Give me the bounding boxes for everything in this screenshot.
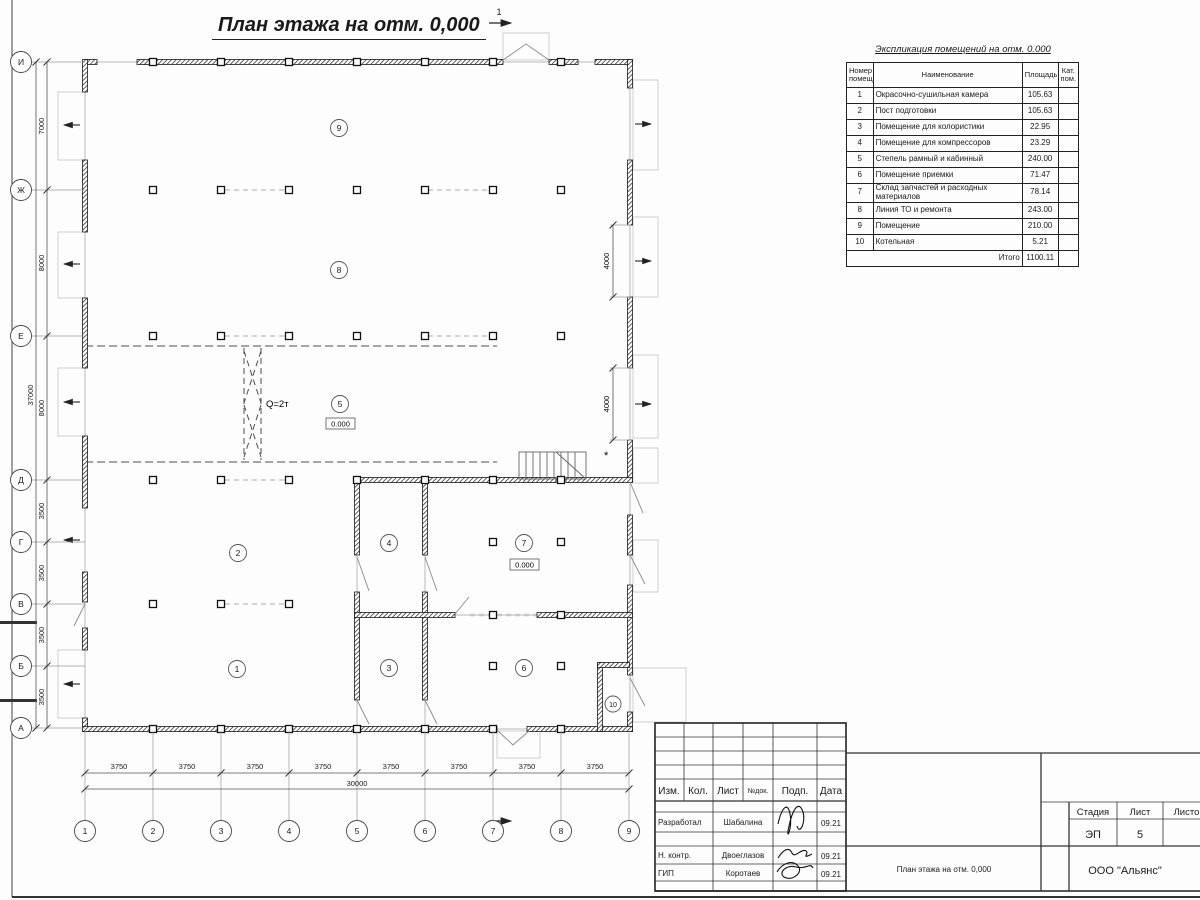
room-num: 5 — [847, 152, 874, 168]
room-name: Помещение для компрессоров — [873, 136, 1022, 152]
svg-text:30000: 30000 — [347, 779, 368, 788]
room-num: 9 — [847, 218, 874, 234]
svg-text:3: 3 — [387, 663, 392, 673]
schedule-title: Экспликация помещений на отм. 0.000 — [846, 44, 1080, 55]
svg-text:9: 9 — [337, 123, 342, 133]
svg-text:3750: 3750 — [519, 762, 536, 771]
svg-text:7: 7 — [491, 826, 496, 836]
entrance-canopy — [503, 33, 549, 60]
schedule-total-row: Итого 1100.11 — [847, 250, 1079, 266]
room-name: Помещение приемки — [873, 168, 1022, 184]
schedule-table: Номер помещ. Наименование Площадь Кат. п… — [846, 62, 1079, 267]
room-num: 3 — [847, 120, 874, 136]
doc-title: План этажа на отм. 0,000 — [897, 865, 992, 874]
schedule-header-row: Номер помещ. Наименование Площадь Кат. п… — [847, 63, 1079, 88]
room-cat — [1058, 202, 1078, 218]
tb-role: Н. контр. — [658, 851, 691, 860]
table-row: 9Помещение210.00 — [847, 218, 1079, 234]
table-row: 6Помещение приемки71.47 — [847, 168, 1079, 184]
room-cat — [1058, 184, 1078, 203]
svg-text:8: 8 — [559, 826, 564, 836]
svg-text:37000: 37000 — [26, 385, 35, 406]
room-name: Степель рамный и кабинный — [873, 152, 1022, 168]
drawing-sheet: Q=2т — [0, 0, 1200, 900]
svg-text:8000: 8000 — [37, 400, 46, 417]
tb-role: Разработал — [658, 818, 702, 827]
svg-text:3500: 3500 — [37, 503, 46, 520]
svg-text:3500: 3500 — [37, 627, 46, 644]
svg-text:7: 7 — [522, 538, 527, 548]
section-marks: 1 1 — [489, 7, 511, 838]
svg-text:Ж: Ж — [17, 185, 25, 195]
room-area: 22.95 — [1022, 120, 1058, 136]
col-header-number: Номер помещ. — [847, 63, 874, 88]
room-cat — [1058, 104, 1078, 120]
svg-text:1: 1 — [496, 7, 501, 17]
walls — [83, 60, 633, 732]
room-cat — [1058, 136, 1078, 152]
table-row: 8Линия ТО и ремонта243.00 — [847, 202, 1079, 218]
svg-text:4000: 4000 — [602, 396, 611, 413]
tb-col-podp: Подп. — [782, 786, 809, 797]
svg-text:1: 1 — [83, 826, 88, 836]
room-cat — [1058, 218, 1078, 234]
room-area: 71.47 — [1022, 168, 1058, 184]
table-row: 4Помещение для компрессоров23.29 — [847, 136, 1079, 152]
room-num: 1 — [847, 88, 874, 104]
svg-text:3750: 3750 — [247, 762, 264, 771]
room-area: 105.63 — [1022, 88, 1058, 104]
svg-text:3500: 3500 — [37, 689, 46, 706]
room-cat — [1058, 120, 1078, 136]
gate-dimensions: 4000 4000 — [602, 222, 631, 444]
svg-text:3750: 3750 — [179, 762, 196, 771]
svg-text:В: В — [18, 599, 24, 609]
svg-text:2: 2 — [236, 548, 241, 558]
tb-name: Двоеглазов — [722, 851, 765, 860]
col-header-cat: Кат. пом. — [1058, 63, 1078, 88]
tb-col-list: Лист — [717, 786, 739, 797]
fold-mark — [0, 621, 37, 624]
svg-text:6: 6 — [522, 663, 527, 673]
svg-text:0.000: 0.000 — [331, 420, 350, 429]
room-name: Помещение для колористики — [873, 120, 1022, 136]
svg-text:3: 3 — [219, 826, 224, 836]
stage-value: ЭП — [1085, 829, 1101, 841]
table-row: 7Склад запчастей и расходных материалов7… — [847, 184, 1079, 203]
tb-name: Коротаев — [726, 869, 761, 878]
room-num: 10 — [847, 234, 874, 250]
tb-col-izm: Изм. — [658, 786, 679, 797]
room-name: Склад запчастей и расходных материалов — [873, 184, 1022, 203]
total-cat — [1058, 250, 1078, 266]
crane-capacity-label: Q=2т — [266, 399, 289, 410]
svg-text:3750: 3750 — [587, 762, 604, 771]
room-area: 240.00 — [1022, 152, 1058, 168]
svg-text:Б: Б — [18, 661, 24, 671]
table-row: 5Степель рамный и кабинный240.00 — [847, 152, 1079, 168]
room-name: Пост подготовки — [873, 104, 1022, 120]
room-schedule: Экспликация помещений на отм. 0.000 Номе… — [846, 44, 1080, 267]
svg-text:3750: 3750 — [111, 762, 128, 771]
fold-mark — [0, 699, 37, 702]
stage-label: Стадия — [1077, 807, 1109, 818]
sheet-label: Лист — [1130, 807, 1151, 818]
signatures — [777, 806, 813, 878]
table-row: 3Помещение для колористики22.95 — [847, 120, 1079, 136]
sheets-label: Листов — [1174, 807, 1200, 818]
col-header-area: Площадь — [1022, 63, 1058, 88]
svg-text:4: 4 — [387, 538, 392, 548]
row-axes: 7000 8000 8000 3500 3500 3500 3500 37000… — [11, 52, 86, 739]
room-cat — [1058, 234, 1078, 250]
svg-text:4: 4 — [287, 826, 292, 836]
crane-rails — [85, 346, 497, 462]
svg-text:9: 9 — [627, 826, 632, 836]
column-axes: 37503750 37503750 37503750 37503750 3000… — [75, 731, 640, 842]
stairs-footnote-asterisk: * — [604, 450, 609, 462]
tb-role: ГИП — [658, 869, 674, 878]
room-area: 5.21 — [1022, 234, 1058, 250]
room-num: 8 — [847, 202, 874, 218]
svg-text:Г: Г — [19, 537, 24, 547]
table-row: 1Окрасочно-сушильная камера105.63 — [847, 88, 1079, 104]
room-num: 7 — [847, 184, 874, 203]
room-cat — [1058, 168, 1078, 184]
svg-text:0.000: 0.000 — [515, 561, 534, 570]
room-num: 4 — [847, 136, 874, 152]
plan-title: План этажа на отм. 0,000 — [212, 14, 486, 40]
svg-text:3750: 3750 — [383, 762, 400, 771]
title-block: Изм. Кол. Лист №док. Подп. Дата Разработ… — [655, 723, 1200, 891]
company-name: ООО "Альянс" — [1088, 865, 1162, 877]
tb-date: 09.21 — [821, 819, 842, 828]
svg-text:3750: 3750 — [315, 762, 332, 771]
aprons-canopies — [58, 33, 686, 758]
room-area: 105.63 — [1022, 104, 1058, 120]
tb-col-data: Дата — [820, 786, 843, 797]
room-name: Котельная — [873, 234, 1022, 250]
svg-text:6: 6 — [423, 826, 428, 836]
svg-text:2: 2 — [151, 826, 156, 836]
svg-text:А: А — [18, 723, 24, 733]
svg-text:Е: Е — [18, 331, 24, 341]
tb-name: Шабалина — [724, 818, 763, 827]
sheet-number: 5 — [1137, 829, 1143, 841]
svg-text:5: 5 — [338, 399, 343, 409]
svg-text:1: 1 — [235, 664, 240, 674]
table-row: 2Пост подготовки105.63 — [847, 104, 1079, 120]
svg-text:5: 5 — [355, 826, 360, 836]
total-label: Итого — [847, 250, 1023, 266]
svg-text:4000: 4000 — [602, 253, 611, 270]
svg-text:3750: 3750 — [451, 762, 468, 771]
room-area: 210.00 — [1022, 218, 1058, 234]
entrance-vestibule — [497, 731, 540, 758]
room-num: 6 — [847, 168, 874, 184]
col-header-name: Наименование — [873, 63, 1022, 88]
stairs — [519, 452, 586, 479]
room-name: Окрасочно-сушильная камера — [873, 88, 1022, 104]
tb-date: 09.21 — [821, 870, 842, 879]
bridge-crane — [244, 348, 261, 460]
svg-text:Д: Д — [18, 475, 24, 485]
room-num: 2 — [847, 104, 874, 120]
svg-text:8000: 8000 — [37, 255, 46, 272]
svg-text:10: 10 — [609, 702, 617, 709]
total-value: 1100.11 — [1022, 250, 1058, 266]
room-cat — [1058, 88, 1078, 104]
room-name: Помещение — [873, 218, 1022, 234]
room-name: Линия ТО и ремонта — [873, 202, 1022, 218]
svg-text:3500: 3500 — [37, 565, 46, 582]
room-area: 78.14 — [1022, 184, 1058, 203]
room-area: 23.29 — [1022, 136, 1058, 152]
tb-col-kol: Кол. — [688, 786, 708, 797]
tb-col-ndok: №док. — [748, 788, 769, 795]
tb-date: 09.21 — [821, 852, 842, 861]
svg-text:И: И — [18, 57, 24, 67]
table-row: 10Котельная5.21 — [847, 234, 1079, 250]
svg-text:8: 8 — [337, 265, 342, 275]
svg-text:7000: 7000 — [37, 118, 46, 135]
room-cat — [1058, 152, 1078, 168]
room-area: 243.00 — [1022, 202, 1058, 218]
